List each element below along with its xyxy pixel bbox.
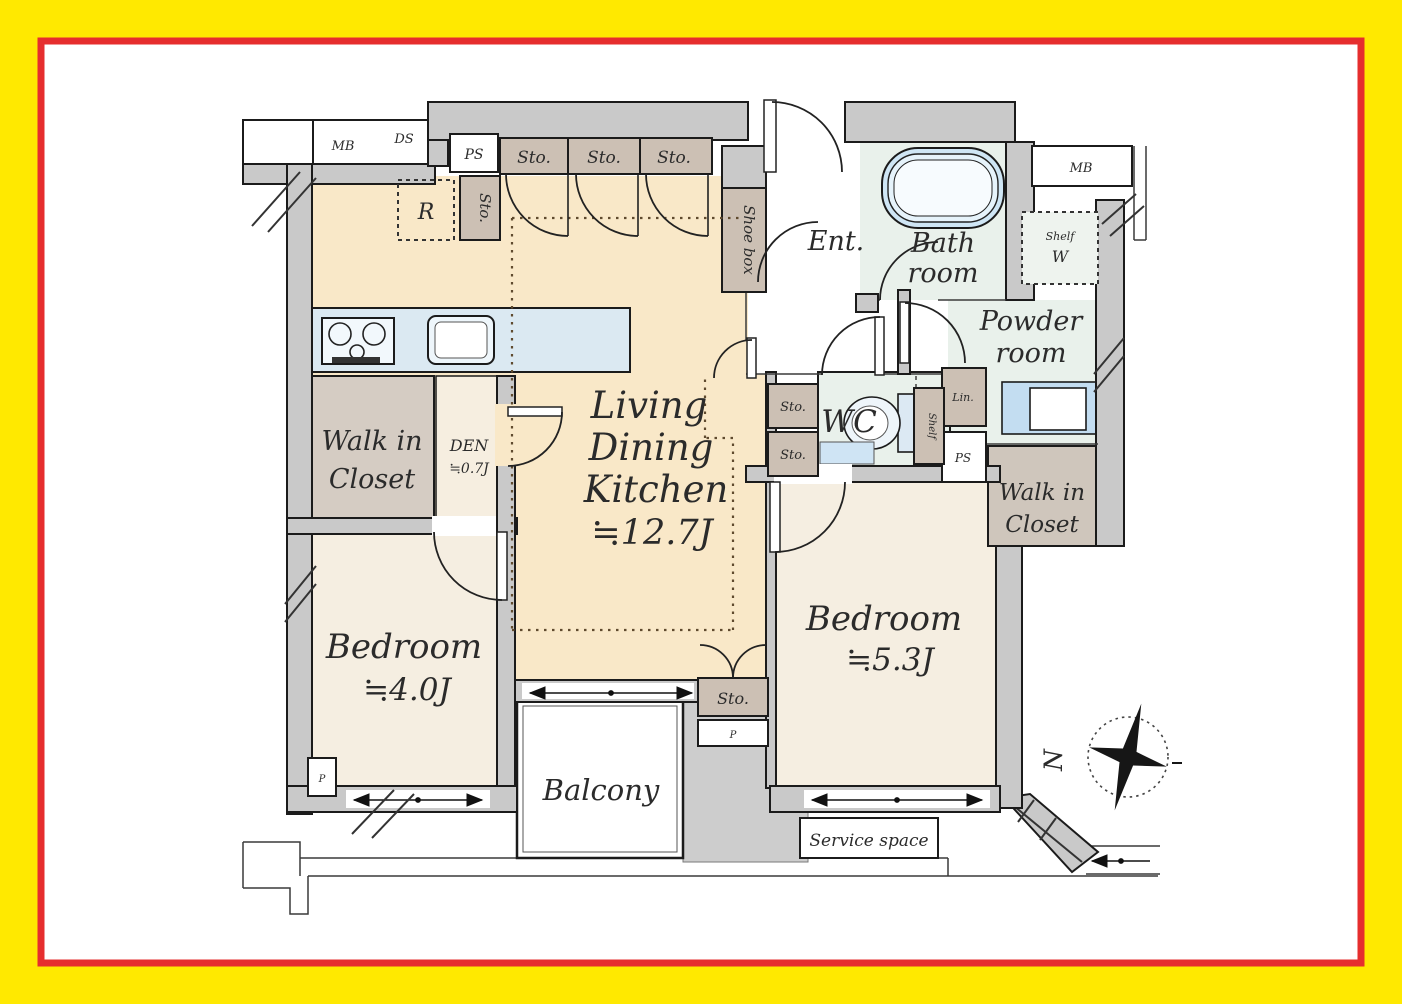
den-door-leaf bbox=[508, 407, 562, 416]
wc-door-leaf bbox=[875, 317, 884, 375]
hall-floor bbox=[748, 288, 958, 374]
storage-label-1: Sto. bbox=[517, 148, 551, 168]
service-space-label: Service space bbox=[809, 831, 928, 851]
ldk-label-3: Kitchen bbox=[583, 468, 729, 511]
ldk-label-1: Living bbox=[590, 384, 708, 427]
storage-label-vertical: Sto. bbox=[476, 193, 494, 223]
floor-plan: N MB DS PS Sto. Sto. Sto. Sto. R Shoe bo… bbox=[0, 0, 1402, 1004]
ldk-label-2: Dining bbox=[588, 426, 714, 469]
bedroom1-label: Bedroom bbox=[325, 627, 482, 667]
bedroom2-label: Bedroom bbox=[805, 599, 962, 639]
powder-door-leaf bbox=[900, 302, 909, 363]
storage-label-5: Sto. bbox=[780, 448, 806, 463]
ps-label-small: PS bbox=[954, 451, 971, 465]
hall-door-leaf bbox=[747, 338, 756, 378]
ds-label: DS bbox=[393, 132, 413, 147]
powder-label-2: room bbox=[995, 338, 1066, 369]
linen-label: Lin. bbox=[951, 391, 973, 404]
shelf-label: Shelf bbox=[926, 413, 937, 441]
den-area-label: ≒0.7J bbox=[449, 461, 490, 477]
walkin-right-label-1: Walk in bbox=[999, 480, 1085, 506]
pillar-bedroom1-label: P bbox=[318, 774, 326, 785]
bedroom2-door-leaf bbox=[770, 482, 780, 552]
walkin-left-label-2: Closet bbox=[329, 464, 415, 495]
storage-label-4: Sto. bbox=[780, 400, 806, 415]
shelf-w-label-1: Shelf bbox=[1046, 230, 1077, 243]
bedroom1-door-gap bbox=[432, 516, 504, 536]
bedroom1-area-label: ≒4.0J bbox=[363, 672, 452, 708]
ldk-area-label: ≒12.7J bbox=[591, 513, 714, 553]
bathroom-label-1: Bath bbox=[910, 228, 975, 259]
kitchen-counter bbox=[312, 308, 630, 372]
bedroom1-door-leaf bbox=[497, 532, 507, 600]
floor-plan-page: N MB DS PS Sto. Sto. Sto. Sto. R Shoe bo… bbox=[0, 0, 1402, 1004]
wc-mat bbox=[820, 442, 874, 464]
shoe-box-label: Shoe box bbox=[740, 205, 758, 275]
bathtub-icon bbox=[882, 148, 1004, 228]
entrance-label: Ent. bbox=[807, 226, 865, 257]
wc-label: WC bbox=[821, 404, 877, 440]
mb-label-right: MB bbox=[1069, 161, 1093, 176]
mb-label-left: MB bbox=[331, 139, 355, 154]
walkin-left-label-1: Walk in bbox=[321, 426, 422, 457]
powder-label-1: Powder bbox=[979, 306, 1085, 337]
shelf-w-label-2: W bbox=[1052, 247, 1070, 266]
bedroom2-area-label: ≒5.3J bbox=[846, 642, 935, 678]
washbasin-icon bbox=[1002, 382, 1098, 434]
ps-label-top: PS bbox=[463, 147, 483, 163]
bathroom-label-2: room bbox=[907, 258, 978, 289]
storage-label-3: Sto. bbox=[657, 148, 691, 168]
north-label: N bbox=[1039, 748, 1068, 772]
den-label: DEN bbox=[449, 436, 490, 455]
pillar-bottom-label: P bbox=[729, 730, 737, 741]
front-door-leaf bbox=[764, 100, 776, 172]
storage-bottom-label: Sto. bbox=[717, 689, 749, 708]
refrigerator-label: R bbox=[417, 200, 435, 225]
storage-label-2: Sto. bbox=[587, 148, 621, 168]
walkin-right-label-2: Closet bbox=[1005, 512, 1079, 538]
balcony-label: Balcony bbox=[542, 773, 660, 807]
